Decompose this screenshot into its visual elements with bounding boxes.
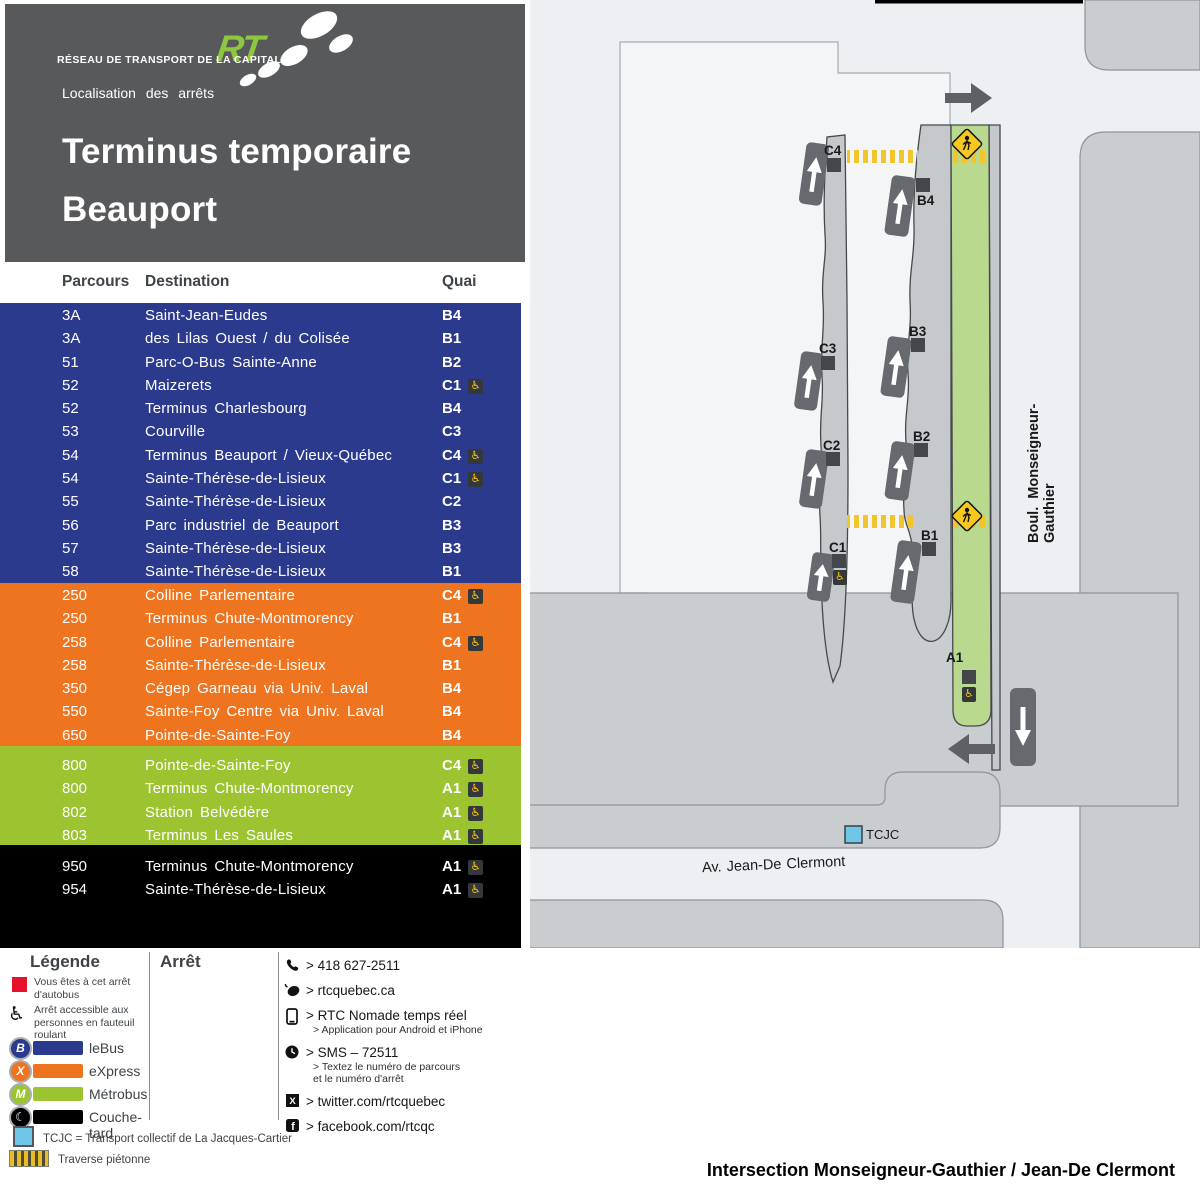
- route-quai: B1: [442, 563, 461, 580]
- route-destination: Terminus Chute-Montmorency: [145, 610, 354, 627]
- contact-item: > RTC Nomade temps réel> Application pou…: [283, 1008, 528, 1036]
- route-destination: Cégep Garneau via Univ. Laval: [145, 680, 368, 697]
- divider: [278, 952, 279, 1120]
- route-number: 800: [62, 780, 87, 797]
- route-quai: C1♿: [442, 470, 483, 487]
- wheelchair-icon: ♿: [468, 759, 483, 774]
- contact-item: > rtcquebec.ca: [283, 983, 528, 999]
- stop-label-b1: B1: [921, 528, 938, 543]
- rtc-logo: RT: [195, 6, 365, 86]
- leBus-logo-icon: B: [9, 1037, 32, 1060]
- route-quai: A1♿: [442, 780, 483, 797]
- stop-square-b3: [911, 338, 925, 352]
- stop-label-a1: A1: [946, 650, 963, 665]
- route-number: 650: [62, 727, 87, 744]
- clock-icon: [283, 1045, 301, 1064]
- wheelchair-icon: ♿: [468, 782, 483, 797]
- route-destination: Terminus Chute-Montmorency: [145, 858, 354, 875]
- route-quai: B3: [442, 540, 461, 557]
- tcjc-text: TCJC = Transport collectif de La Jacques…: [43, 1133, 292, 1145]
- table-row: 800Pointe-de-Sainte-FoyC4♿: [0, 755, 521, 778]
- legend-panel: Légende Arrêt Vous êtes à cet arrêt d'au…: [0, 948, 530, 1200]
- poster-title-line2: Beauport: [62, 190, 217, 230]
- table-row: 550Sainte-Foy Centre via Univ. LavalB4: [0, 701, 521, 724]
- route-quai: B4: [442, 703, 461, 720]
- table-row: 954Sainte-Thérèse-de-LisieuxA1♿: [0, 879, 521, 902]
- street-label-boulevard: Boul. Monseigneur-Gauthier: [1026, 358, 1058, 543]
- mouse-icon: [283, 983, 301, 1002]
- leBus-color-bar: [33, 1041, 83, 1055]
- legend-mode-eXpress: XeXpress: [9, 1060, 149, 1083]
- table-row: 58Sainte-Thérèse-de-LisieuxB1: [0, 561, 521, 584]
- route-number: 350: [62, 680, 87, 697]
- table-section-express: 250Colline ParlementaireC4♿250Terminus C…: [0, 583, 521, 748]
- column-header-parcours: Parcours: [62, 273, 129, 291]
- wheelchair-icon: ♿: [468, 883, 483, 898]
- route-quai: C4♿: [442, 447, 483, 464]
- accessible-stop-text: Arrêt accessible aux personnes en fauteu…: [34, 1004, 146, 1042]
- stop-label-c1: C1: [829, 540, 846, 555]
- table-section-couche-tard: 950Terminus Chute-MontmorencyA1♿954Saint…: [0, 845, 521, 959]
- table-row: 3Ades Lilas Ouest / du ColiséeB1: [0, 328, 521, 351]
- legend-mode-label: eXpress: [89, 1063, 140, 1079]
- column-header-destination: Destination: [145, 273, 229, 291]
- route-destination: Sainte-Foy Centre via Univ. Laval: [145, 703, 384, 720]
- route-quai: B4: [442, 400, 461, 417]
- wheelchair-icon: ♿: [468, 379, 483, 394]
- stop-square-c4: [827, 158, 841, 172]
- legend-mode-leBus: BleBus: [9, 1037, 149, 1060]
- route-quai: A1♿: [442, 827, 483, 844]
- contact-item: f> facebook.com/rtcqc: [283, 1119, 528, 1135]
- route-quai: B1: [442, 330, 461, 347]
- route-number: 258: [62, 634, 87, 651]
- phone-icon: [283, 958, 301, 978]
- route-destination: Terminus Charlesbourg: [145, 400, 307, 417]
- route-quai: B4: [442, 307, 461, 324]
- route-number: 52: [62, 377, 79, 394]
- table-row: 258Sainte-Thérèse-de-LisieuxB1: [0, 655, 521, 678]
- route-quai: C4♿: [442, 587, 483, 604]
- stop-square-a1: [962, 670, 976, 684]
- Métrobus-color-bar: [33, 1087, 83, 1101]
- table-row: 57Sainte-Thérèse-de-LisieuxB3: [0, 538, 521, 561]
- wheelchair-icon: ♿: [468, 472, 483, 487]
- stop-square-c1: [832, 554, 846, 568]
- route-destination: Pointe-de-Sainte-Foy: [145, 757, 291, 774]
- routes-table: 3ASaint-Jean-EudesB43Ades Lilas Ouest / …: [0, 303, 521, 948]
- route-destination: Parc industriel de Beauport: [145, 517, 339, 534]
- route-number: 58: [62, 563, 79, 580]
- route-quai: A1♿: [442, 858, 483, 875]
- contact-item: > 418 627-2511: [283, 958, 528, 974]
- wheelchair-icon: ♿: [468, 449, 483, 464]
- route-destination: Colline Parlementaire: [145, 634, 295, 651]
- route-quai: B2: [442, 354, 461, 371]
- route-quai: A1♿: [442, 804, 483, 821]
- route-number: 54: [62, 470, 79, 487]
- facebook-icon: f: [283, 1119, 301, 1137]
- route-destination: Saint-Jean-Eudes: [145, 307, 267, 324]
- poster-subtitle: Localisation des arrêts: [62, 85, 214, 101]
- table-row: 650Pointe-de-Sainte-FoyB4: [0, 725, 521, 748]
- tcjc-icon: [13, 1126, 34, 1147]
- legend-title: Légende: [30, 952, 100, 972]
- stop-label-c3: C3: [819, 341, 836, 356]
- route-quai: C1♿: [442, 377, 483, 394]
- header-panel: RT RÉSEAU DE TRANSPORT DE LA CAPITALE Lo…: [5, 4, 525, 262]
- route-destination: Sainte-Thérèse-de-Lisieux: [145, 470, 326, 487]
- legend-mode-list: BleBusXeXpressMMétrobus☾Couche-tard: [9, 1037, 149, 1129]
- route-destination: Maizerets: [145, 377, 212, 394]
- table-row: 800Terminus Chute-MontmorencyA1♿: [0, 778, 521, 801]
- route-destination: Sainte-Thérèse-de-Lisieux: [145, 881, 326, 898]
- legend-mode-label: leBus: [89, 1040, 124, 1056]
- route-number: 258: [62, 657, 87, 674]
- table-row: 52MaizeretsC1♿: [0, 375, 521, 398]
- wheelchair-icon: ♿: [468, 860, 483, 875]
- stop-square-b4: [916, 178, 930, 192]
- table-row: 54Terminus Beauport / Vieux-QuébecC4♿: [0, 445, 521, 468]
- contact-text: > twitter.com/rtcquebec: [306, 1094, 445, 1109]
- route-number: 250: [62, 610, 87, 627]
- stop-label-c2: C2: [823, 438, 840, 453]
- route-destination: Sainte-Thérèse-de-Lisieux: [145, 493, 326, 510]
- route-quai: C3: [442, 423, 461, 440]
- stop-square-c3: [821, 356, 835, 370]
- rtc-stop-location-poster: RT RÉSEAU DE TRANSPORT DE LA CAPITALE Lo…: [0, 0, 1200, 1200]
- rtc-logo-dot-icon: [326, 31, 356, 57]
- stop-square-b2: [914, 443, 928, 457]
- contact-sub-text: et le numéro d'arrêt: [313, 1073, 404, 1085]
- table-row: 3ASaint-Jean-EudesB4: [0, 305, 521, 328]
- stop-label-b3: B3: [909, 324, 926, 339]
- table-row: 250Colline ParlementaireC4♿: [0, 585, 521, 608]
- legend-mode-label: Métrobus: [89, 1086, 147, 1102]
- route-number: 52: [62, 400, 79, 417]
- stop-label-b4: B4: [917, 193, 934, 208]
- stop-label-c4: C4: [824, 143, 841, 158]
- poster-title-line1: Terminus temporaire: [62, 132, 411, 172]
- route-destination: Parc-O-Bus Sainte-Anne: [145, 354, 317, 371]
- route-number: 56: [62, 517, 79, 534]
- route-number: 3A: [62, 307, 80, 324]
- table-row: 802Station BelvédèreA1♿: [0, 802, 521, 825]
- route-quai: B1: [442, 610, 461, 627]
- wheelchair-icon: ♿: [468, 589, 483, 604]
- route-number: 53: [62, 423, 79, 440]
- wheelchair-icon: ♿: [468, 829, 483, 844]
- Métrobus-logo-icon: M: [9, 1083, 32, 1106]
- route-quai: C4♿: [442, 634, 483, 651]
- divider: [149, 952, 150, 1120]
- table-row: 53CourvilleC3: [0, 421, 521, 444]
- wheelchair-icon: ♿: [468, 636, 483, 651]
- table-row: 52Terminus CharlesbourgB4: [0, 398, 521, 421]
- route-destination: Terminus Les Saules: [145, 827, 293, 844]
- route-destination: Sainte-Thérèse-de-Lisieux: [145, 657, 326, 674]
- route-destination: Terminus Beauport / Vieux-Québec: [145, 447, 392, 464]
- route-quai: C4♿: [442, 757, 483, 774]
- route-destination: des Lilas Ouest / du Colisée: [145, 330, 350, 347]
- route-destination: Terminus Chute-Montmorency: [145, 780, 354, 797]
- legend-tcjc: TCJC = Transport collectif de La Jacques…: [13, 1126, 292, 1147]
- table-row: 56Parc industriel de BeauportB3: [0, 515, 521, 538]
- tcjc-map-label: TCJC: [866, 827, 899, 842]
- contact-text: > facebook.com/rtcqc: [306, 1119, 435, 1134]
- table-row: 54Sainte-Thérèse-de-LisieuxC1♿: [0, 468, 521, 491]
- contact-text: > SMS – 72511: [306, 1045, 398, 1060]
- route-number: 803: [62, 827, 87, 844]
- Couche-tard-color-bar: [33, 1110, 83, 1124]
- contact-list: > 418 627-2511> rtcquebec.ca> RTC Nomade…: [283, 958, 528, 1144]
- legend-crosswalk: Traverse piétonne: [9, 1150, 150, 1167]
- table-section-lebus: 3ASaint-Jean-EudesB43Ades Lilas Ouest / …: [0, 303, 521, 585]
- route-destination: Courville: [145, 423, 205, 440]
- you-are-here-icon: [12, 977, 27, 992]
- route-number: 250: [62, 587, 87, 604]
- table-row: 250Terminus Chute-MontmorencyB1: [0, 608, 521, 631]
- wheelchair-icon: ♿: [8, 1003, 25, 1026]
- route-number: 54: [62, 447, 79, 464]
- table-section-metrobus: 800Pointe-de-Sainte-FoyC4♿800Terminus Ch…: [0, 746, 521, 854]
- route-destination: Pointe-de-Sainte-Foy: [145, 727, 291, 744]
- route-destination: Sainte-Thérèse-de-Lisieux: [145, 563, 326, 580]
- contact-text: > RTC Nomade temps réel: [306, 1008, 467, 1023]
- route-quai: B3: [442, 517, 461, 534]
- contact-sub-text: > Textez le numéro de parcours: [313, 1061, 460, 1073]
- route-number: 950: [62, 858, 87, 875]
- route-destination: Station Belvédère: [145, 804, 269, 821]
- crosswalk-text: Traverse piétonne: [58, 1154, 150, 1166]
- route-quai: B4: [442, 727, 461, 744]
- wheelchair-icon: ♿: [833, 570, 847, 585]
- contact-text: > 418 627-2511: [306, 958, 400, 973]
- agency-name: RÉSEAU DE TRANSPORT DE LA CAPITALE: [57, 54, 289, 66]
- contact-item: > SMS – 72511> Textez le numéro de parco…: [283, 1045, 528, 1085]
- stop-label-b2: B2: [913, 429, 930, 444]
- route-number: 3A: [62, 330, 80, 347]
- route-number: 55: [62, 493, 79, 510]
- contact-text: > rtcquebec.ca: [306, 983, 395, 998]
- tcjc-marker: [845, 826, 862, 843]
- map-drawing: [530, 0, 1200, 948]
- wheelchair-icon: ♿: [962, 687, 976, 702]
- route-number: 802: [62, 804, 87, 821]
- route-destination: Colline Parlementaire: [145, 587, 295, 604]
- route-quai: C2: [442, 493, 461, 510]
- eXpress-color-bar: [33, 1064, 83, 1078]
- route-number: 51: [62, 354, 79, 371]
- route-number: 550: [62, 703, 87, 720]
- table-row: 55Sainte-Thérèse-de-LisieuxC2: [0, 491, 521, 514]
- contact-sub-text: > Application pour Android et iPhone: [313, 1024, 483, 1036]
- mobile-icon: [283, 1008, 301, 1030]
- table-header: Parcours Destination Quai: [0, 262, 521, 303]
- svg-text:f: f: [291, 1121, 295, 1132]
- stop-square-c2: [826, 452, 840, 466]
- you-are-here-text: Vous êtes à cet arrêt d'autobus: [34, 976, 146, 1001]
- route-number: 954: [62, 881, 87, 898]
- route-quai: B4: [442, 680, 461, 697]
- stop-square-b1: [922, 542, 936, 556]
- route-number: 800: [62, 757, 87, 774]
- twitter-icon: X: [283, 1094, 301, 1112]
- arret-title: Arrêt: [160, 952, 201, 972]
- legend-mode-Métrobus: MMétrobus: [9, 1083, 149, 1106]
- column-header-quai: Quai: [442, 273, 476, 291]
- table-row: 950Terminus Chute-MontmorencyA1♿: [0, 856, 521, 879]
- route-number: 57: [62, 540, 79, 557]
- svg-text:X: X: [289, 1096, 296, 1107]
- contact-item: X> twitter.com/rtcquebec: [283, 1094, 528, 1110]
- route-destination: Sainte-Thérèse-de-Lisieux: [145, 540, 326, 557]
- crosswalk-icon: [9, 1150, 49, 1167]
- table-row: 258Colline ParlementaireC4♿: [0, 632, 521, 655]
- eXpress-logo-icon: X: [9, 1060, 32, 1083]
- terminus-map: C4 B4 C3 B3 C2 B2 C1 ♿ B1 A1 ♿ Boul. Mon…: [530, 0, 1200, 948]
- wheelchair-icon: ♿: [468, 806, 483, 821]
- route-quai: B1: [442, 657, 461, 674]
- route-quai: A1♿: [442, 881, 483, 898]
- table-row: 350Cégep Garneau via Univ. LavalB4: [0, 678, 521, 701]
- table-row: 51Parc-O-Bus Sainte-AnneB2: [0, 352, 521, 375]
- map-caption: Intersection Monseigneur-Gauthier / Jean…: [700, 1160, 1190, 1181]
- rtc-logo-dot-icon: [238, 71, 259, 89]
